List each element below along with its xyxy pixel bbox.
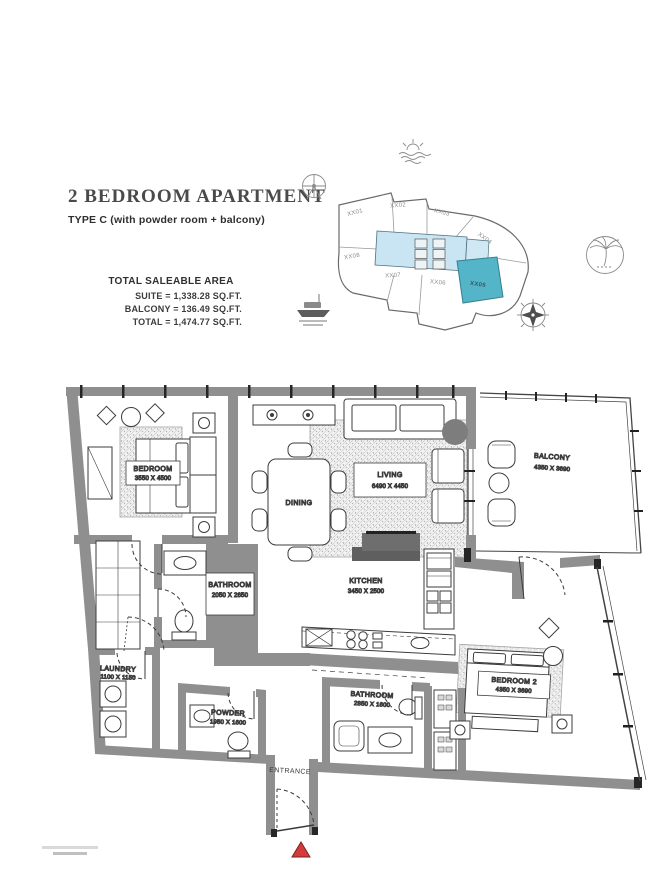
accent-chair bbox=[97, 406, 115, 424]
ferris-wheel-icon bbox=[303, 175, 326, 200]
room-label: BATHROOM bbox=[350, 691, 393, 700]
room-dims: 4350 X 3690 bbox=[534, 465, 571, 474]
room-label: LIVING bbox=[377, 472, 402, 479]
yacht-icon bbox=[297, 294, 330, 325]
area-balcony-line: BALCONY = 136.49 SQ.FT. bbox=[100, 303, 242, 316]
entrance: ENTRANCE bbox=[269, 767, 311, 857]
room-dims: 2850 X 1600 bbox=[354, 701, 391, 709]
room-label: DINING bbox=[286, 500, 313, 507]
room-dims: 1100 X 1150 bbox=[100, 674, 136, 681]
room-label-box bbox=[477, 671, 550, 699]
master-bedroom: BEDROOM 3550 X 4500 bbox=[88, 404, 216, 649]
side-table bbox=[122, 408, 141, 427]
wardrobe-panel bbox=[190, 437, 216, 475]
room-dims: 3550 X 4500 bbox=[135, 476, 172, 482]
laundry: LAUNDRY 1100 X 1150 bbox=[100, 665, 136, 737]
keyplan-highlighted-unit bbox=[457, 257, 503, 303]
dining-chair bbox=[331, 509, 346, 531]
sea-icon bbox=[399, 139, 431, 164]
room-dims: 6490 X 4450 bbox=[372, 484, 409, 490]
accent-chair bbox=[146, 404, 164, 422]
page-title: 2 BEDROOM APARTMENT bbox=[68, 186, 328, 208]
title-block: 2 BEDROOM APARTMENT TYPE C (with powder … bbox=[68, 186, 328, 226]
balcony-table bbox=[489, 473, 509, 493]
oven bbox=[427, 571, 451, 587]
pillow bbox=[511, 654, 543, 666]
toilet bbox=[228, 732, 248, 750]
room-label: BALCONY bbox=[534, 453, 571, 463]
kitchen: KITCHEN 3450 X 2500 bbox=[302, 549, 455, 655]
room-label: BATHROOM bbox=[208, 582, 251, 589]
room-dims: 3450 X 2500 bbox=[348, 589, 385, 595]
room-label-box bbox=[354, 463, 426, 497]
entrance-marker bbox=[292, 842, 310, 857]
dining-chair bbox=[252, 509, 267, 531]
powder-room: POWDER 1950 X 1600 bbox=[190, 705, 250, 758]
area-summary-heading: TOTAL SALEABLE AREA bbox=[100, 276, 242, 287]
armchair bbox=[432, 449, 464, 483]
room-label: POWDER bbox=[211, 709, 245, 717]
wardrobe-panel bbox=[190, 475, 216, 513]
floor-plan: BEDROOM 3550 X 4500 LIVING 6490 X 4450 bbox=[0, 385, 660, 873]
room-label: LAUNDRY bbox=[100, 665, 136, 673]
area-summary: TOTAL SALEABLE AREA SUITE = 1,338.28 SQ.… bbox=[100, 276, 242, 329]
kitchen-sink bbox=[411, 638, 429, 649]
room-label: BEDROOM bbox=[134, 466, 173, 473]
compass-icon bbox=[517, 299, 549, 331]
bench bbox=[472, 716, 539, 731]
side-table bbox=[544, 647, 563, 666]
armchair bbox=[432, 489, 464, 523]
toilet bbox=[399, 699, 417, 715]
dining-chair bbox=[288, 547, 312, 561]
tv-console bbox=[362, 533, 420, 551]
palm-icon bbox=[587, 237, 624, 274]
dining-chair bbox=[252, 471, 267, 493]
balcony-chair bbox=[488, 499, 515, 526]
page-subtitle: TYPE C (with powder room + balcony) bbox=[68, 214, 328, 226]
room-dims: 1950 X 1600 bbox=[210, 719, 247, 726]
corner-fineprint bbox=[42, 846, 98, 860]
sideboard bbox=[253, 405, 335, 425]
bathroom-2: BATHROOM 2850 X 1600 bbox=[334, 690, 456, 770]
toilet bbox=[175, 610, 193, 632]
area-total-line: TOTAL = 1,474.77 SQ.FT. bbox=[100, 316, 242, 329]
pillow bbox=[473, 652, 505, 664]
room-label: KITCHEN bbox=[349, 578, 383, 585]
accent-chair bbox=[539, 618, 559, 638]
dining-chair bbox=[288, 443, 312, 457]
pouf bbox=[442, 419, 468, 445]
unit-label: XX07 bbox=[385, 272, 402, 279]
area-suite-line: SUITE = 1,338.28 SQ.FT. bbox=[100, 290, 242, 303]
floorplan-page: 2 BEDROOM APARTMENT TYPE C (with powder … bbox=[0, 0, 660, 873]
room-dims: 2050 X 2650 bbox=[212, 593, 249, 599]
room-label: ENTRANCE bbox=[269, 767, 311, 776]
oven bbox=[427, 553, 451, 569]
key-plan: XX01 XX02 XX03 XX04 XX05 XX06 XX07 XX08 bbox=[295, 135, 645, 340]
balcony: BALCONY 4350 X 3690 bbox=[488, 441, 571, 526]
dining-chair bbox=[331, 471, 346, 493]
keyplan-building: XX01 XX02 XX03 XX04 XX05 XX06 XX07 XX08 bbox=[338, 193, 528, 330]
